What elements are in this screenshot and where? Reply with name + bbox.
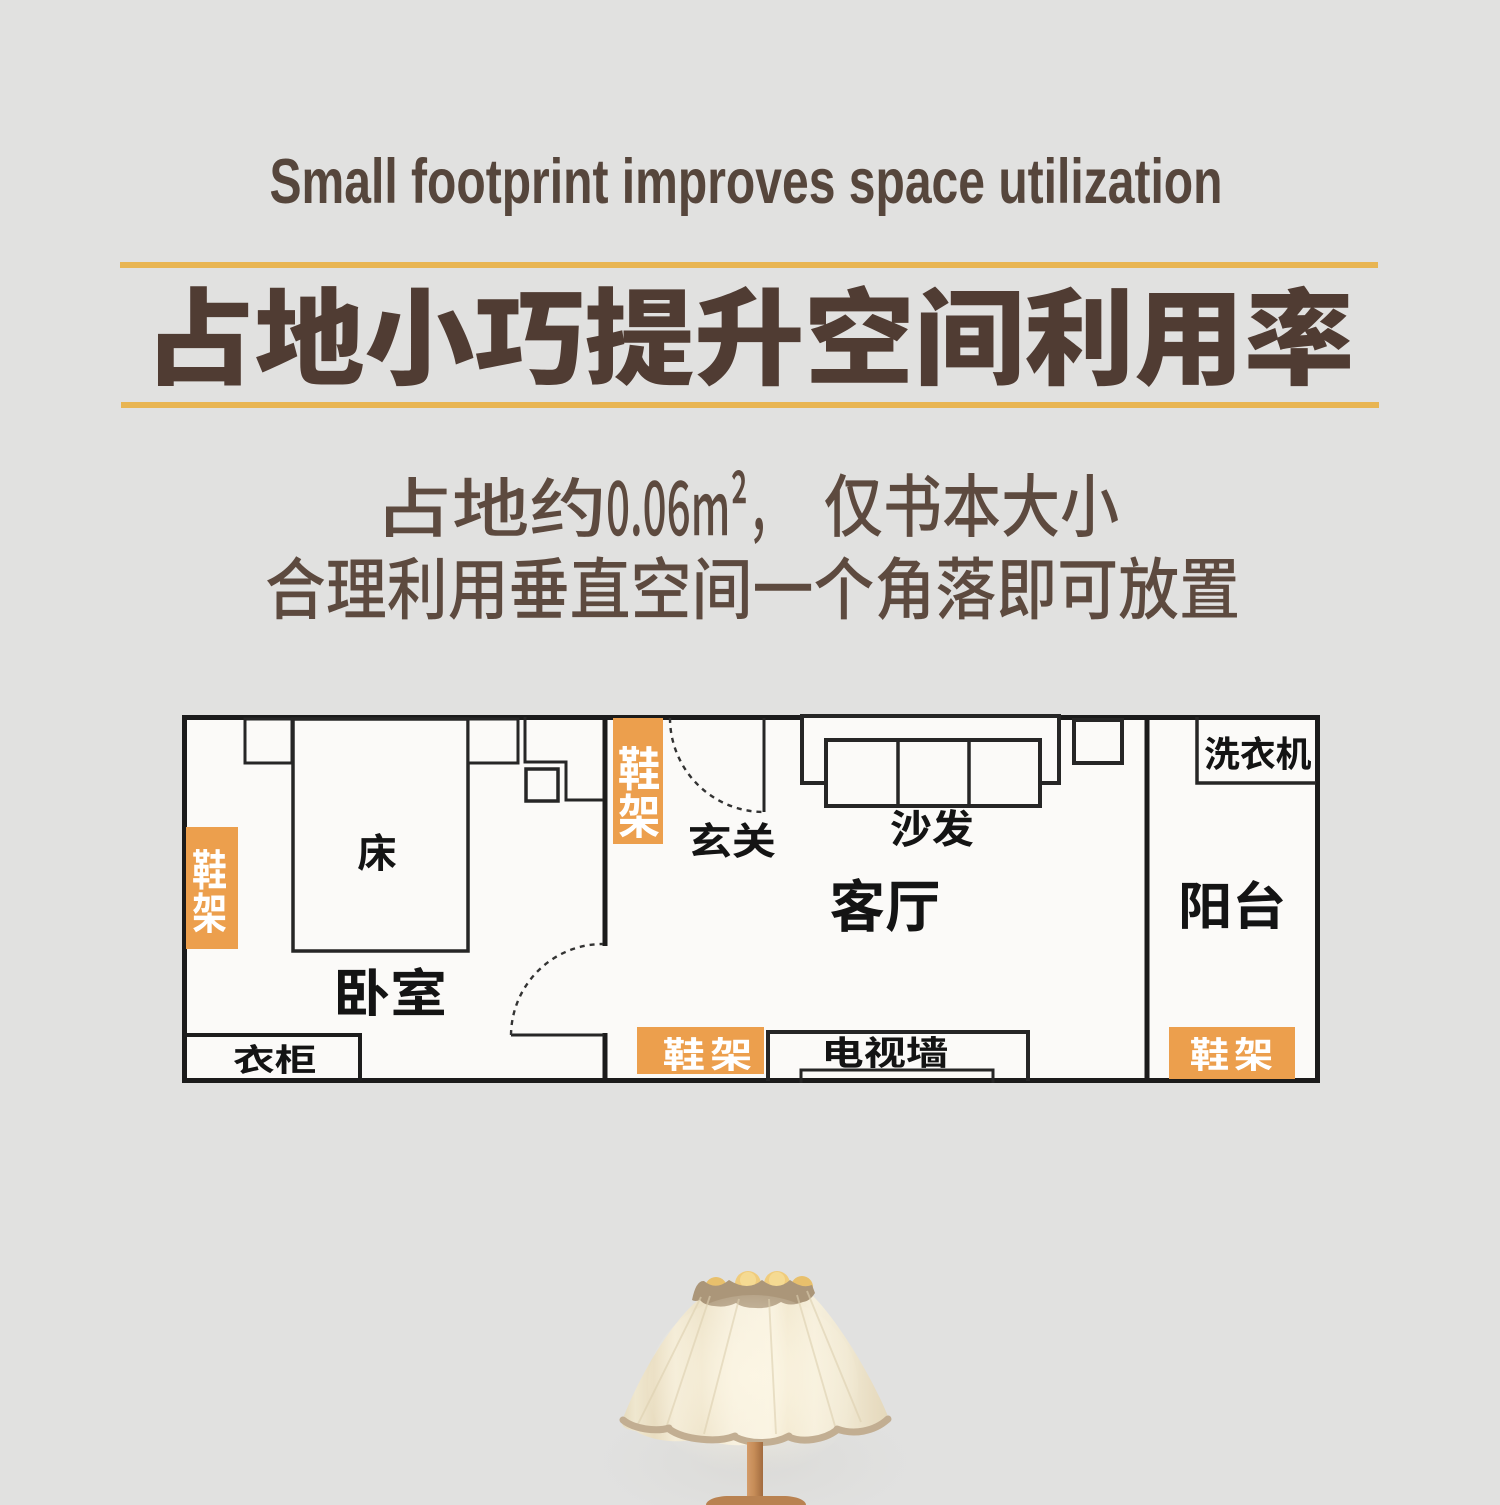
svg-text:Small footprint improves space: Small footprint improves space utilizati…: [270, 147, 1223, 217]
